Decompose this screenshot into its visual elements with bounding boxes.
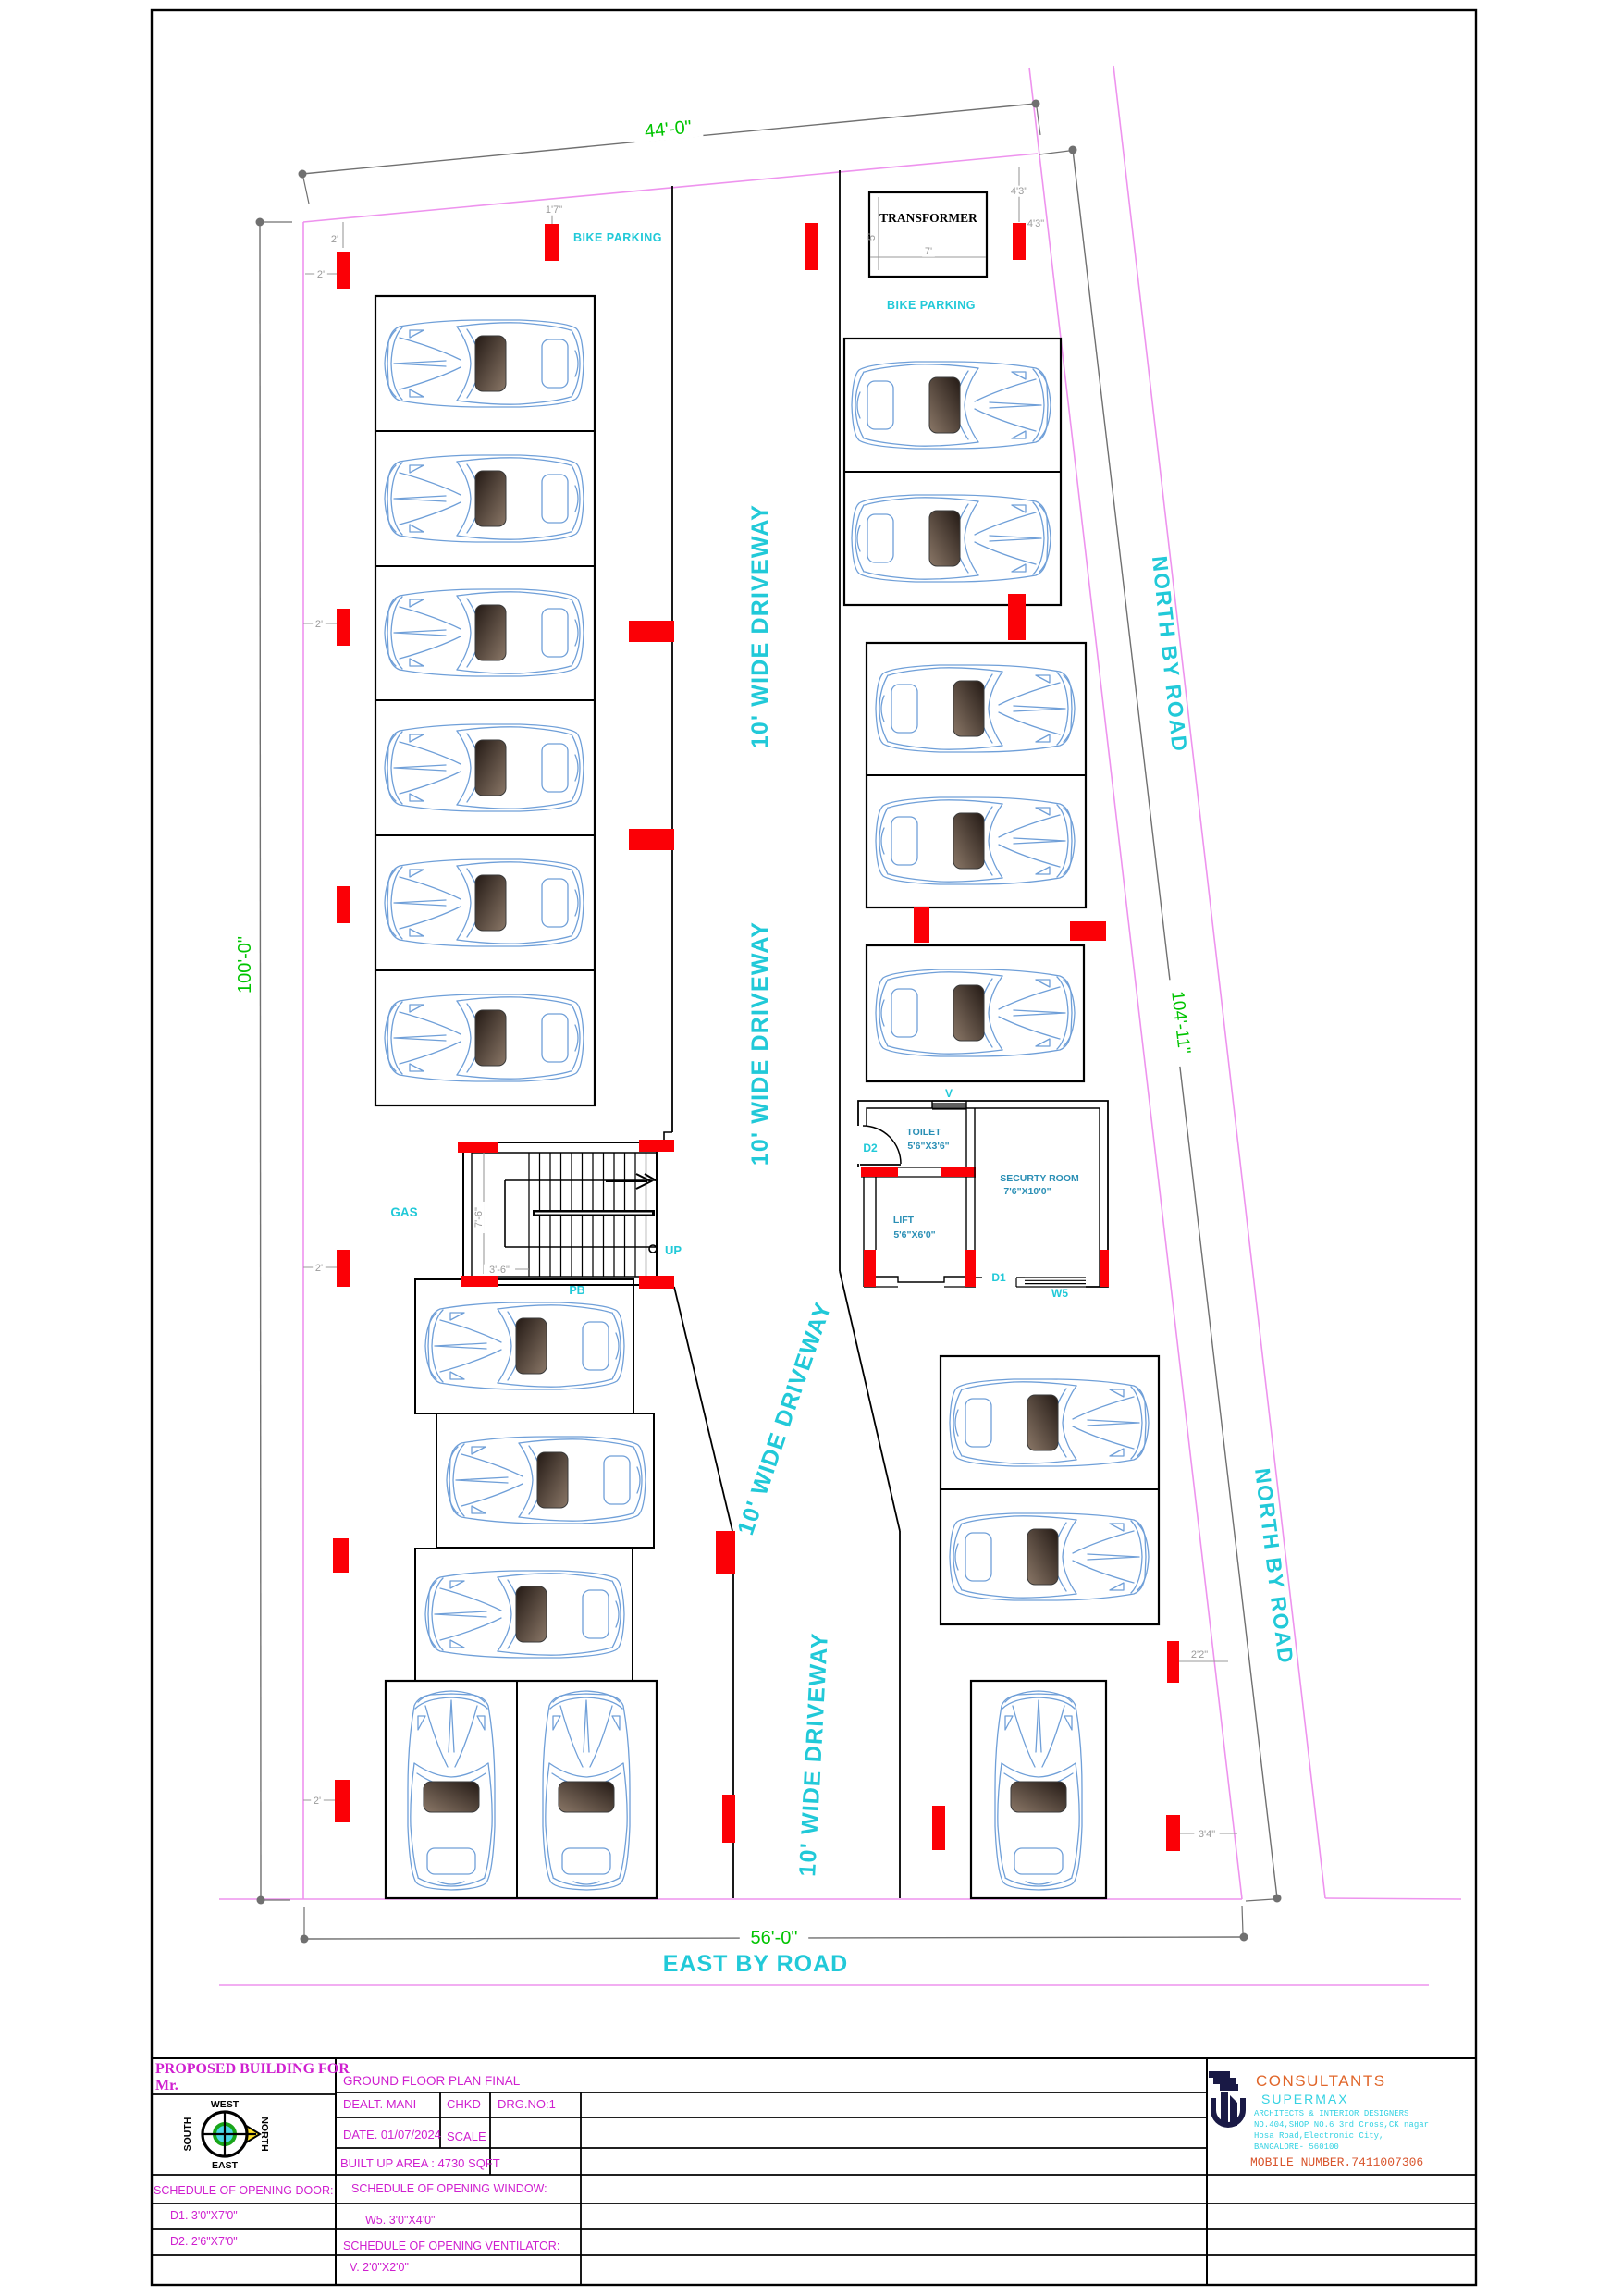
svg-text:10' WIDE DRIVEWAY: 10' WIDE DRIVEWAY	[747, 504, 773, 748]
svg-text:NORTH BY ROAD: NORTH BY ROAD	[1250, 1467, 1298, 1666]
svg-text:7': 7'	[925, 246, 932, 257]
svg-text:WEST: WEST	[211, 2099, 240, 2110]
svg-text:BUILT UP AREA : 4730 SQFT: BUILT UP AREA : 4730 SQFT	[340, 2156, 500, 2170]
svg-text:SCALE: SCALE	[447, 2129, 486, 2143]
svg-text:GAS: GAS	[390, 1205, 417, 1219]
svg-text:7'-6": 7'-6"	[473, 1207, 485, 1228]
svg-text:TRANSFORMER: TRANSFORMER	[879, 211, 977, 225]
svg-text:TOILET: TOILET	[906, 1127, 941, 1138]
svg-text:EAST: EAST	[212, 2160, 239, 2171]
svg-text:SCHEDULE OF OPENING WINDOW:: SCHEDULE OF OPENING WINDOW:	[351, 2182, 547, 2195]
svg-text:5'6"X3'6": 5'6"X3'6"	[907, 1141, 949, 1152]
svg-text:LIFT: LIFT	[893, 1215, 915, 1226]
svg-text:10' WIDE DRIVEWAY: 10' WIDE DRIVEWAY	[794, 1632, 833, 1877]
svg-text:SCHEDULE OF OPENING VENTILATOR: SCHEDULE OF OPENING VENTILATOR:	[343, 2240, 559, 2253]
svg-text:100'-0": 100'-0"	[235, 936, 255, 994]
svg-text:EAST BY ROAD: EAST BY ROAD	[663, 1951, 848, 1977]
svg-text:5'6"X6'0": 5'6"X6'0"	[893, 1229, 935, 1241]
svg-text:7'6"X10'0": 7'6"X10'0"	[1003, 1186, 1051, 1197]
svg-text:PROPOSED BUILDING FOR: PROPOSED BUILDING FOR	[155, 2061, 350, 2077]
svg-text:1'7": 1'7"	[546, 204, 562, 216]
svg-text:SCHEDULE OF OPENING DOOR:: SCHEDULE OF OPENING DOOR:	[154, 2184, 333, 2197]
svg-text:D2: D2	[863, 1142, 878, 1154]
svg-text:3'4": 3'4"	[1199, 1829, 1215, 1840]
svg-text:4'3": 4'3"	[1011, 186, 1027, 197]
svg-text:DATE. 01/07/2024: DATE. 01/07/2024	[343, 2128, 441, 2142]
svg-text:2': 2'	[315, 619, 323, 630]
svg-text:UP: UP	[665, 1243, 682, 1257]
svg-text:BANGALORE- 560100: BANGALORE- 560100	[1254, 2142, 1339, 2152]
svg-text:PB: PB	[569, 1284, 584, 1297]
svg-text:ARCHITECTS & INTERIOR DESIGNER: ARCHITECTS & INTERIOR DESIGNERS	[1254, 2109, 1408, 2118]
svg-text:MOBILE NUMBER.7411007306: MOBILE NUMBER.7411007306	[1250, 2155, 1423, 2169]
svg-text:BIKE PARKING: BIKE PARKING	[887, 299, 976, 312]
svg-text:DEALT. MANI: DEALT. MANI	[343, 2097, 416, 2111]
svg-text:2': 2'	[314, 1796, 321, 1807]
svg-text:GROUND FLOOR PLAN FINAL: GROUND FLOOR PLAN FINAL	[343, 2074, 521, 2088]
svg-text:V. 2'0"X2'0": V. 2'0"X2'0"	[350, 2261, 409, 2274]
svg-text:W5: W5	[1051, 1287, 1068, 1300]
svg-text:NO.404,SHOP NO.6 3rd Cross,CK: NO.404,SHOP NO.6 3rd Cross,CK nagar	[1254, 2120, 1429, 2129]
svg-text:56'-0": 56'-0"	[751, 1928, 798, 1948]
svg-text:BIKE PARKING: BIKE PARKING	[573, 231, 662, 244]
svg-text:NORTH: NORTH	[259, 2117, 270, 2151]
svg-text:5': 5'	[867, 233, 878, 241]
svg-text:SECURTY ROOM: SECURTY ROOM	[1000, 1173, 1079, 1184]
svg-text:CONSULTANTS: CONSULTANTS	[1256, 2072, 1386, 2090]
svg-text:10' WIDE DRIVEWAY: 10' WIDE DRIVEWAY	[732, 1299, 837, 1538]
svg-text:44'-0": 44'-0"	[644, 117, 693, 142]
svg-text:NORTH BY ROAD: NORTH BY ROAD	[1148, 555, 1192, 754]
svg-text:4'3": 4'3"	[1027, 218, 1044, 229]
svg-text:2': 2'	[317, 269, 325, 280]
svg-text:2': 2'	[315, 1263, 323, 1274]
svg-text:2': 2'	[331, 234, 338, 245]
svg-text:D2. 2'6"X7'0": D2. 2'6"X7'0"	[170, 2235, 238, 2248]
svg-text:Hosa Road,Electronic City,: Hosa Road,Electronic City,	[1254, 2131, 1383, 2141]
svg-text:V: V	[945, 1087, 953, 1100]
svg-text:2'2": 2'2"	[1191, 1649, 1208, 1660]
svg-text:Mr.: Mr.	[155, 2078, 178, 2093]
svg-text:10' WIDE DRIVEWAY: 10' WIDE DRIVEWAY	[747, 921, 773, 1166]
svg-text:104'-11": 104'-11"	[1167, 990, 1194, 1055]
svg-text:3'-6": 3'-6"	[489, 1265, 510, 1276]
svg-text:CHKD: CHKD	[447, 2097, 481, 2111]
svg-text:W5. 3'0"X4'0": W5. 3'0"X4'0"	[365, 2214, 436, 2227]
svg-text:SUPERMAX: SUPERMAX	[1261, 2092, 1349, 2106]
svg-text:SOUTH: SOUTH	[182, 2117, 193, 2152]
svg-text:D1: D1	[991, 1271, 1006, 1284]
svg-text:D1. 3'0"X7'0": D1. 3'0"X7'0"	[170, 2209, 238, 2222]
svg-text:DRG.NO:1: DRG.NO:1	[498, 2097, 556, 2111]
